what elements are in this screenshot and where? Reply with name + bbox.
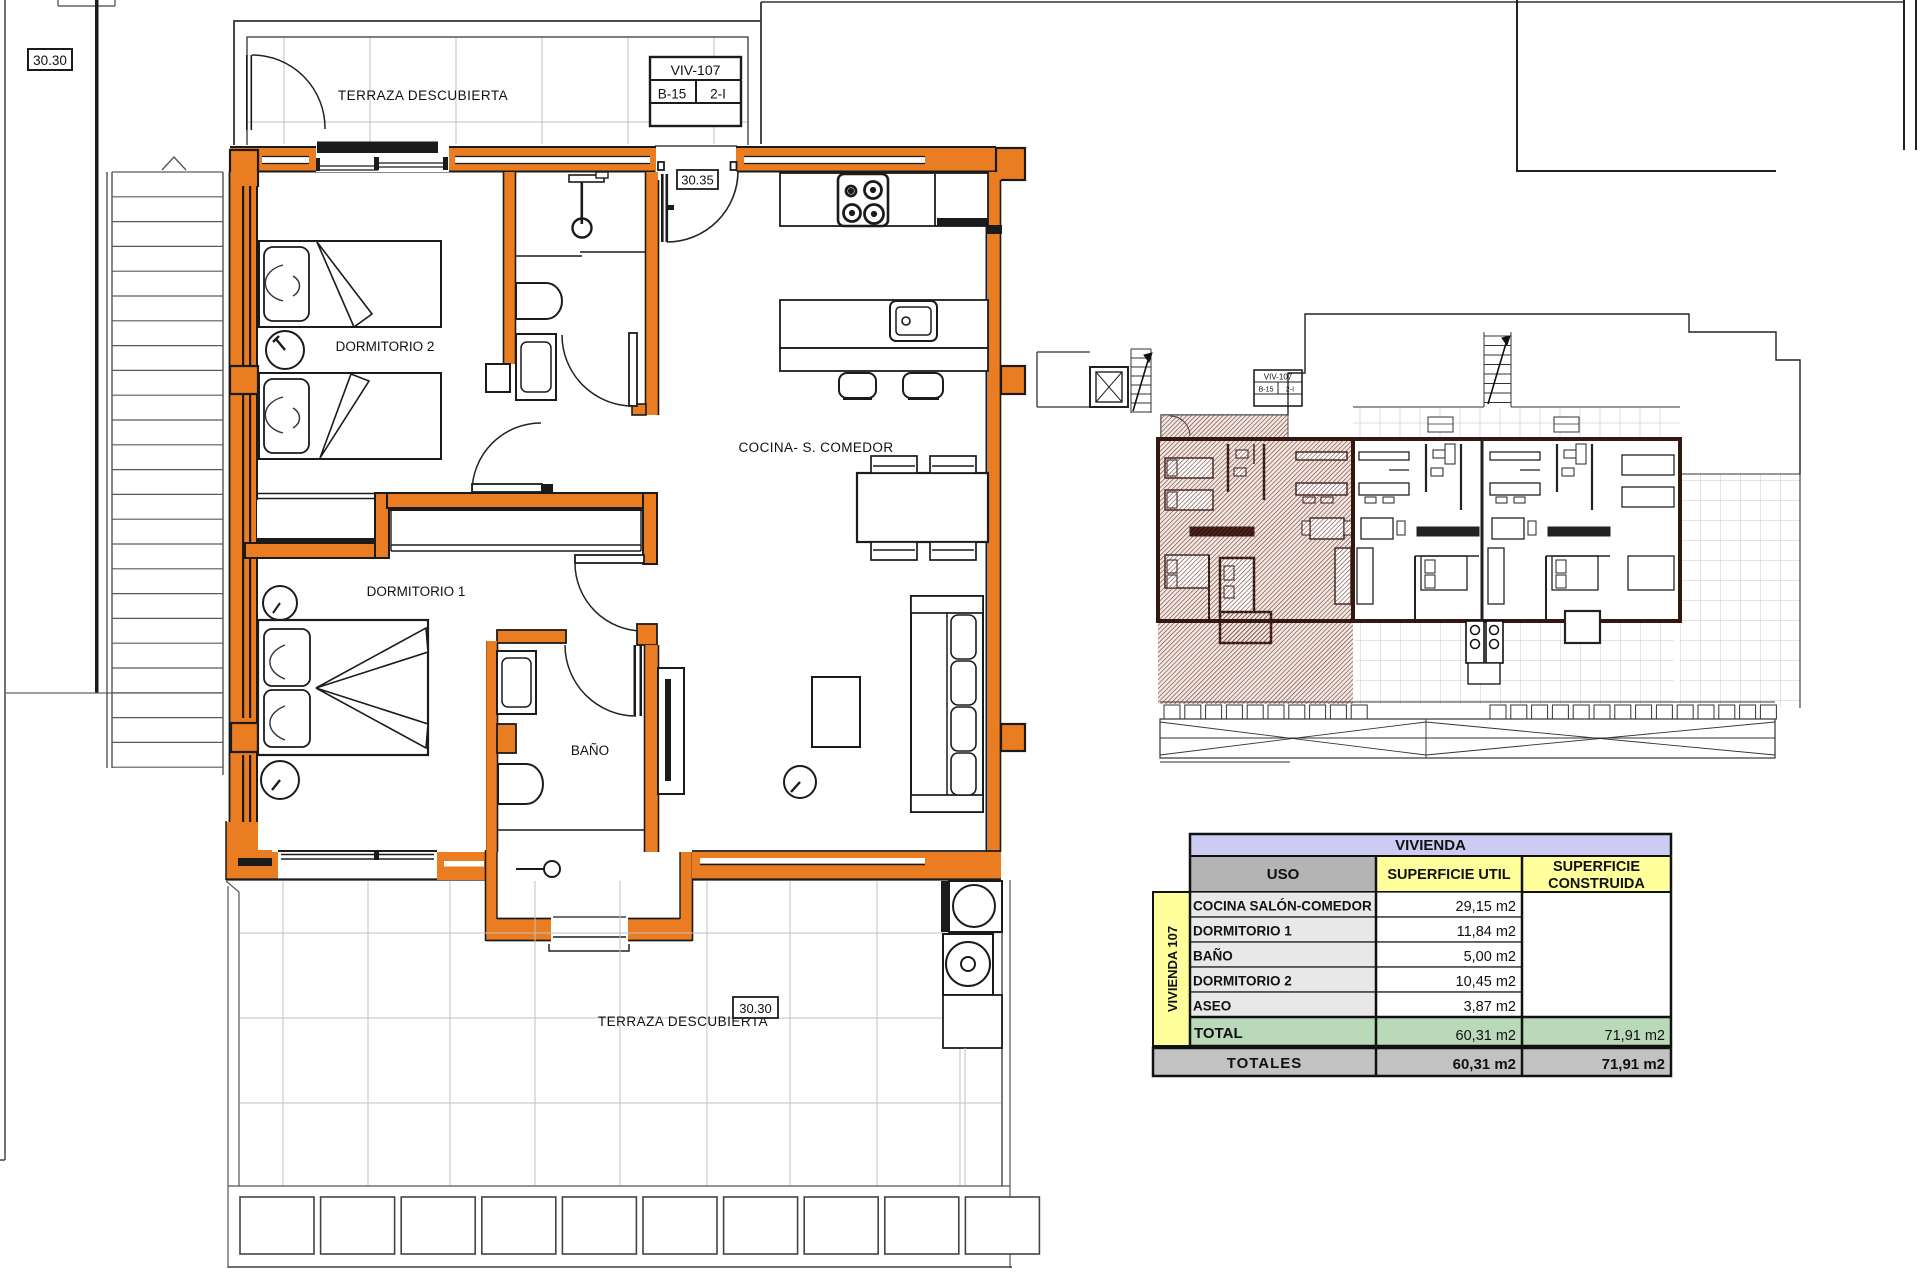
svg-text:COCINA- S. COMEDOR: COCINA- S. COMEDOR [739, 440, 894, 455]
svg-text:DORMITORIO 1: DORMITORIO 1 [367, 584, 466, 599]
svg-text:TERRAZA DESCUBIERTA: TERRAZA DESCUBIERTA [338, 88, 508, 103]
svg-text:SUPERFICIE: SUPERFICIE [1553, 859, 1640, 875]
svg-text:TOTAL: TOTAL [1194, 1025, 1243, 1042]
svg-text:2-I: 2-I [1286, 387, 1294, 394]
svg-text:SUPERFICIE UTIL: SUPERFICIE UTIL [1387, 867, 1510, 883]
svg-text:VIVIENDA: VIVIENDA [1395, 837, 1466, 854]
svg-text:DORMITORIO 2: DORMITORIO 2 [336, 339, 435, 354]
svg-text:VIV-107: VIV-107 [671, 62, 721, 78]
svg-text:DORMITORIO 1: DORMITORIO 1 [1193, 924, 1292, 939]
svg-text:B-15: B-15 [1259, 387, 1274, 394]
svg-text:DORMITORIO 2: DORMITORIO 2 [1193, 974, 1292, 989]
svg-text:60,31 m2: 60,31 m2 [1453, 1056, 1516, 1073]
svg-text:30.30: 30.30 [33, 53, 67, 68]
svg-text:11,84 m2: 11,84 m2 [1457, 924, 1516, 940]
svg-text:29,15 m2: 29,15 m2 [1456, 899, 1516, 915]
svg-text:2-I: 2-I [710, 87, 726, 102]
svg-text:VIVIENDA 107: VIVIENDA 107 [1165, 926, 1180, 1012]
svg-text:BAÑO: BAÑO [571, 743, 609, 758]
svg-text:3,87 m2: 3,87 m2 [1464, 999, 1516, 1015]
svg-text:USO: USO [1267, 866, 1300, 883]
svg-text:60,31 m2: 60,31 m2 [1456, 1028, 1516, 1044]
svg-text:30.30: 30.30 [739, 1001, 772, 1016]
svg-text:5,00 m2: 5,00 m2 [1464, 949, 1516, 965]
svg-text:30.35: 30.35 [681, 173, 714, 188]
svg-text:BAÑO: BAÑO [1193, 949, 1233, 964]
svg-text:71,91 m2: 71,91 m2 [1605, 1028, 1665, 1044]
svg-text:B-15: B-15 [658, 87, 687, 102]
svg-text:10,45 m2: 10,45 m2 [1456, 974, 1516, 990]
svg-text:71,91 m2: 71,91 m2 [1602, 1056, 1665, 1073]
svg-text:ASEO: ASEO [1193, 999, 1231, 1014]
svg-text:CONSTRUIDA: CONSTRUIDA [1548, 876, 1645, 892]
svg-text:TOTALES: TOTALES [1227, 1055, 1303, 1072]
svg-text:COCINA SALÓN-COMEDOR: COCINA SALÓN-COMEDOR [1193, 899, 1372, 914]
